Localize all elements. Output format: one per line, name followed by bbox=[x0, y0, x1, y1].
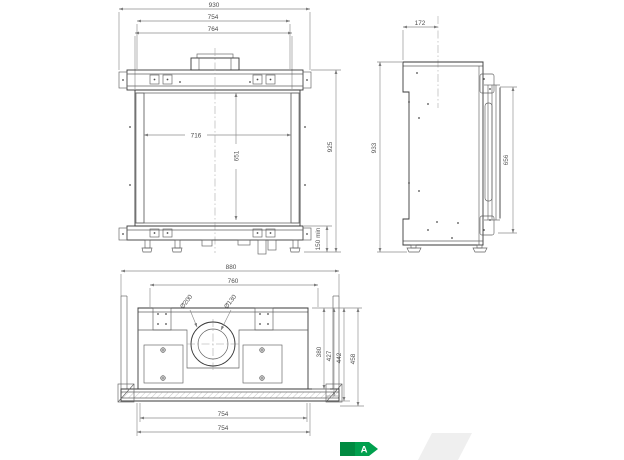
dim-label: 754 bbox=[218, 425, 229, 432]
firebox-body bbox=[129, 90, 306, 226]
front-view: 930 754 764 bbox=[119, 2, 341, 254]
dim-label: 754 bbox=[208, 14, 219, 21]
dim-door-height: 656 bbox=[498, 87, 517, 233]
dim-label: 172 bbox=[415, 20, 426, 27]
watermark-shape bbox=[418, 433, 472, 460]
dim-front-overall-height: 925 bbox=[304, 70, 341, 252]
dim-label: 716 bbox=[191, 133, 202, 140]
dim-label: 150 min bbox=[315, 227, 322, 250]
dim-label: 651 bbox=[234, 150, 241, 161]
energy-class-letter: A bbox=[361, 445, 368, 456]
energy-badge-left-strip bbox=[340, 442, 355, 456]
fireplace-dimension-drawing: 930 754 764 bbox=[0, 0, 624, 460]
dim-front-overall-width: 930 bbox=[119, 2, 310, 70]
dim-flue-inner-dia: Ø130 bbox=[221, 293, 238, 330]
adjustable-feet bbox=[142, 240, 300, 254]
dim-label: 764 bbox=[208, 26, 219, 33]
dim-label: 933 bbox=[371, 142, 378, 153]
dim-front-frame-width: 754 bbox=[137, 14, 290, 69]
dim-plan-depths: 380 427 442 458 bbox=[312, 308, 364, 406]
dim-label: 380 bbox=[316, 346, 323, 357]
technical-drawing-page: 930 754 764 bbox=[0, 0, 624, 460]
dim-label: 442 bbox=[336, 352, 343, 363]
left-frame-strip bbox=[136, 93, 144, 223]
side-flanges bbox=[121, 296, 339, 389]
dim-label: 880 bbox=[226, 264, 237, 271]
dim-label: 754 bbox=[218, 411, 229, 418]
dim-label: 925 bbox=[327, 141, 334, 152]
dim-plan-front-width-2: 754 bbox=[137, 403, 310, 436]
dim-flue-outer-dia: Ø200 bbox=[179, 293, 197, 327]
dim-front-inner-width: 764 bbox=[135, 26, 292, 89]
dim-side-top-depth: 172 bbox=[403, 20, 438, 60]
dim-base-clearance: 150 min bbox=[304, 226, 332, 252]
dim-side-overall-height: 933 bbox=[371, 62, 407, 252]
right-frame-strip bbox=[291, 93, 299, 223]
side-body bbox=[403, 62, 483, 245]
dim-label: 656 bbox=[503, 154, 510, 165]
side-feet bbox=[407, 245, 487, 252]
dim-glass-height: 651 bbox=[231, 93, 241, 220]
dim-label: 458 bbox=[350, 353, 357, 364]
dim-label: 930 bbox=[209, 2, 220, 9]
side-view: 172 bbox=[371, 16, 517, 252]
energy-class-badge: A bbox=[340, 442, 378, 456]
plan-view: 880 760 bbox=[118, 264, 364, 436]
dim-label: 427 bbox=[326, 350, 333, 361]
dim-label: 760 bbox=[228, 278, 239, 285]
flue-opening bbox=[187, 319, 239, 370]
dim-glass-width: 716 bbox=[144, 131, 291, 140]
dim-plan-front-width-1: 754 bbox=[140, 403, 307, 422]
